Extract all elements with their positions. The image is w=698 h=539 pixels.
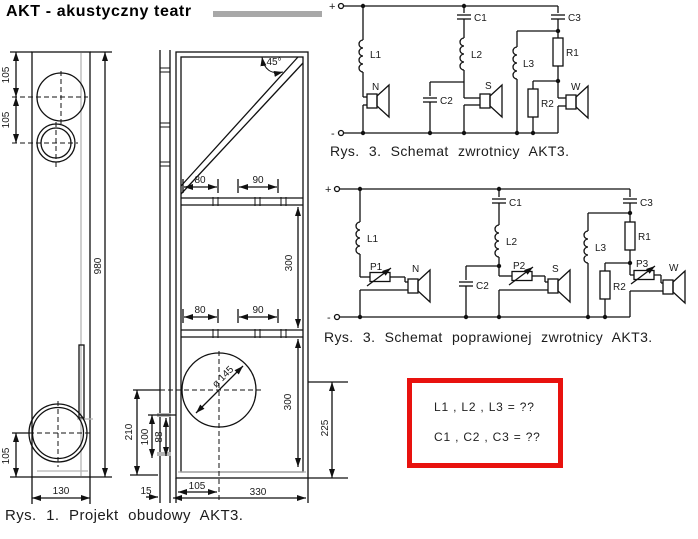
speaker-w [663,280,673,294]
label-w: W [571,82,581,93]
inductor-l1 [356,222,360,254]
dim-980: 980 [93,257,104,274]
label-n: N [372,82,379,93]
label-w: W [669,263,679,274]
dim-angle-45: 45° [266,57,281,68]
caption-fig3-improved-schematic: Rys. 3. Schemat poprawionej zwrotnicy AK… [324,329,653,345]
label-l1: L1 [370,50,382,61]
dim-105: 105 [189,481,206,492]
label-n: N [412,264,419,275]
dim-210: 210 [124,423,135,440]
dim-100: 100 [140,428,151,445]
technical-drawing-canvas: 105 105 980 105 130 [0,0,698,539]
dim-top-80: 80 [194,175,206,186]
label-p2: P2 [513,261,526,272]
terminal-minus: - [331,128,335,140]
dim-330: 330 [250,487,267,498]
dim-225: 225 [320,419,331,436]
speaker-w [566,95,576,109]
label-s: S [552,264,559,275]
inductor-l2 [460,38,464,70]
dim-130: 130 [53,486,70,497]
speaker-n [367,94,377,108]
speaker-s [480,94,490,108]
label-l3: L3 [523,59,535,70]
label-l3: L3 [595,243,607,254]
label-r1: R1 [638,232,651,243]
dim-top-90: 90 [252,175,264,186]
label-s: S [485,81,492,92]
dim-88: 88 [154,431,165,443]
label-r2: R2 [541,99,554,110]
terminal-plus: + [329,1,335,13]
dim-300-upper: 300 [284,254,295,271]
note-line-inductors: L1 , L2 , L3 = ?? [434,400,535,414]
speaker-n [408,279,418,293]
resistor-r1 [625,222,635,250]
schematic-crossover-1 [339,4,589,136]
dim-300-lower: 300 [283,393,294,410]
dim-105-mid: 105 [1,111,12,128]
schematic-2-labels: + - L1 L2 L3 C1 C2 C3 R1 R2 P1 P2 P3 N S… [325,184,679,324]
dim-15: 15 [140,486,152,497]
inductor-l3 [513,47,517,79]
dim-mid-90: 90 [252,305,264,316]
label-p3: P3 [636,259,649,270]
label-c1: C1 [474,13,487,24]
label-r1: R1 [566,48,579,59]
label-c3: C3 [568,13,581,24]
label-c2: C2 [440,96,453,107]
label-c2: C2 [476,281,489,292]
dim-mid-80: 80 [194,305,206,316]
caption-fig1-enclosure: Rys. 1. Projekt obudowy AKT3. [5,507,243,524]
cabinet-front-view-labels: 45° 80 90 80 90 300 300 225 210 100 88 ø… [124,57,331,498]
inductor-l2 [495,225,499,257]
page: AKT - akustyczny teatr [0,0,698,539]
unknown-values-note-box: L1 , L2 , L3 = ?? C1 , C2 , C3 = ?? [407,378,563,468]
note-line-capacitors: C1 , C2 , C3 = ?? [434,430,541,444]
caption-fig3-schematic: Rys. 3. Schemat zwrotnicy AKT3. [330,143,569,159]
dim-105-bottom: 105 [1,447,12,464]
speaker-s [548,279,558,293]
label-c3: C3 [640,198,653,209]
resistor-r2 [600,271,610,299]
resistor-r2 [528,89,538,117]
label-p1: P1 [370,262,383,273]
inductor-l1 [359,40,363,72]
dim-105-top: 105 [1,66,12,83]
label-l2: L2 [471,50,483,61]
resistor-r1 [553,38,563,66]
label-l1: L1 [367,234,379,245]
label-c1: C1 [509,198,522,209]
label-l2: L2 [506,237,518,248]
label-r2: R2 [613,282,626,293]
schematic-1-labels: + - L1 L2 L3 C1 C2 C3 R1 R2 N S W [329,1,581,140]
terminal-minus: - [327,312,331,324]
cabinet-side-view [10,52,112,504]
terminal-plus: + [325,184,331,196]
inductor-l3 [584,231,588,263]
